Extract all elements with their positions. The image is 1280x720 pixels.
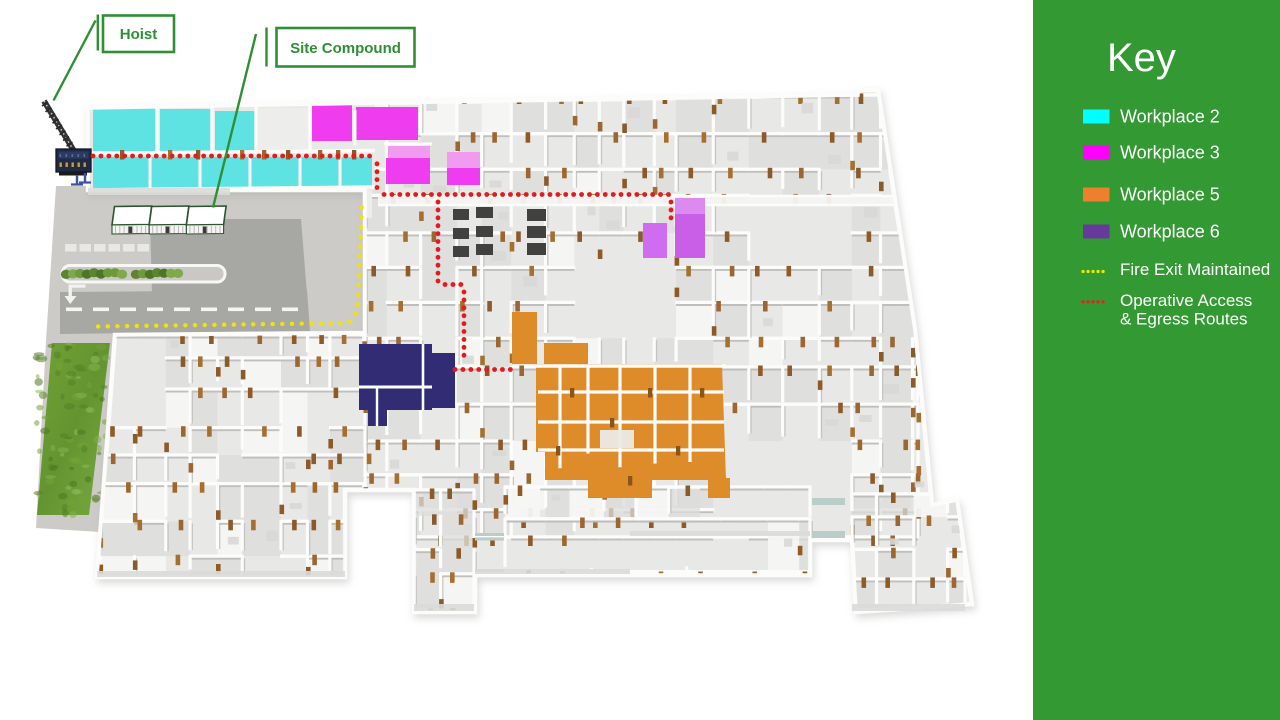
svg-text:Workplace 3: Workplace 3	[1120, 143, 1220, 163]
svg-text:Workplace 6: Workplace 6	[1120, 222, 1220, 242]
svg-text:Site Compound: Site Compound	[290, 40, 401, 57]
svg-text:Key: Key	[1107, 36, 1176, 80]
svg-text:Fire Exit Maintained: Fire Exit Maintained	[1120, 260, 1270, 279]
svg-text:Hoist: Hoist	[120, 26, 158, 43]
svg-text:& Egress Routes: & Egress Routes	[1120, 310, 1248, 329]
svg-text:Workplace 5: Workplace 5	[1120, 185, 1220, 205]
svg-text:Operative Access: Operative Access	[1120, 291, 1252, 310]
svg-text:Workplace 2: Workplace 2	[1120, 107, 1220, 127]
